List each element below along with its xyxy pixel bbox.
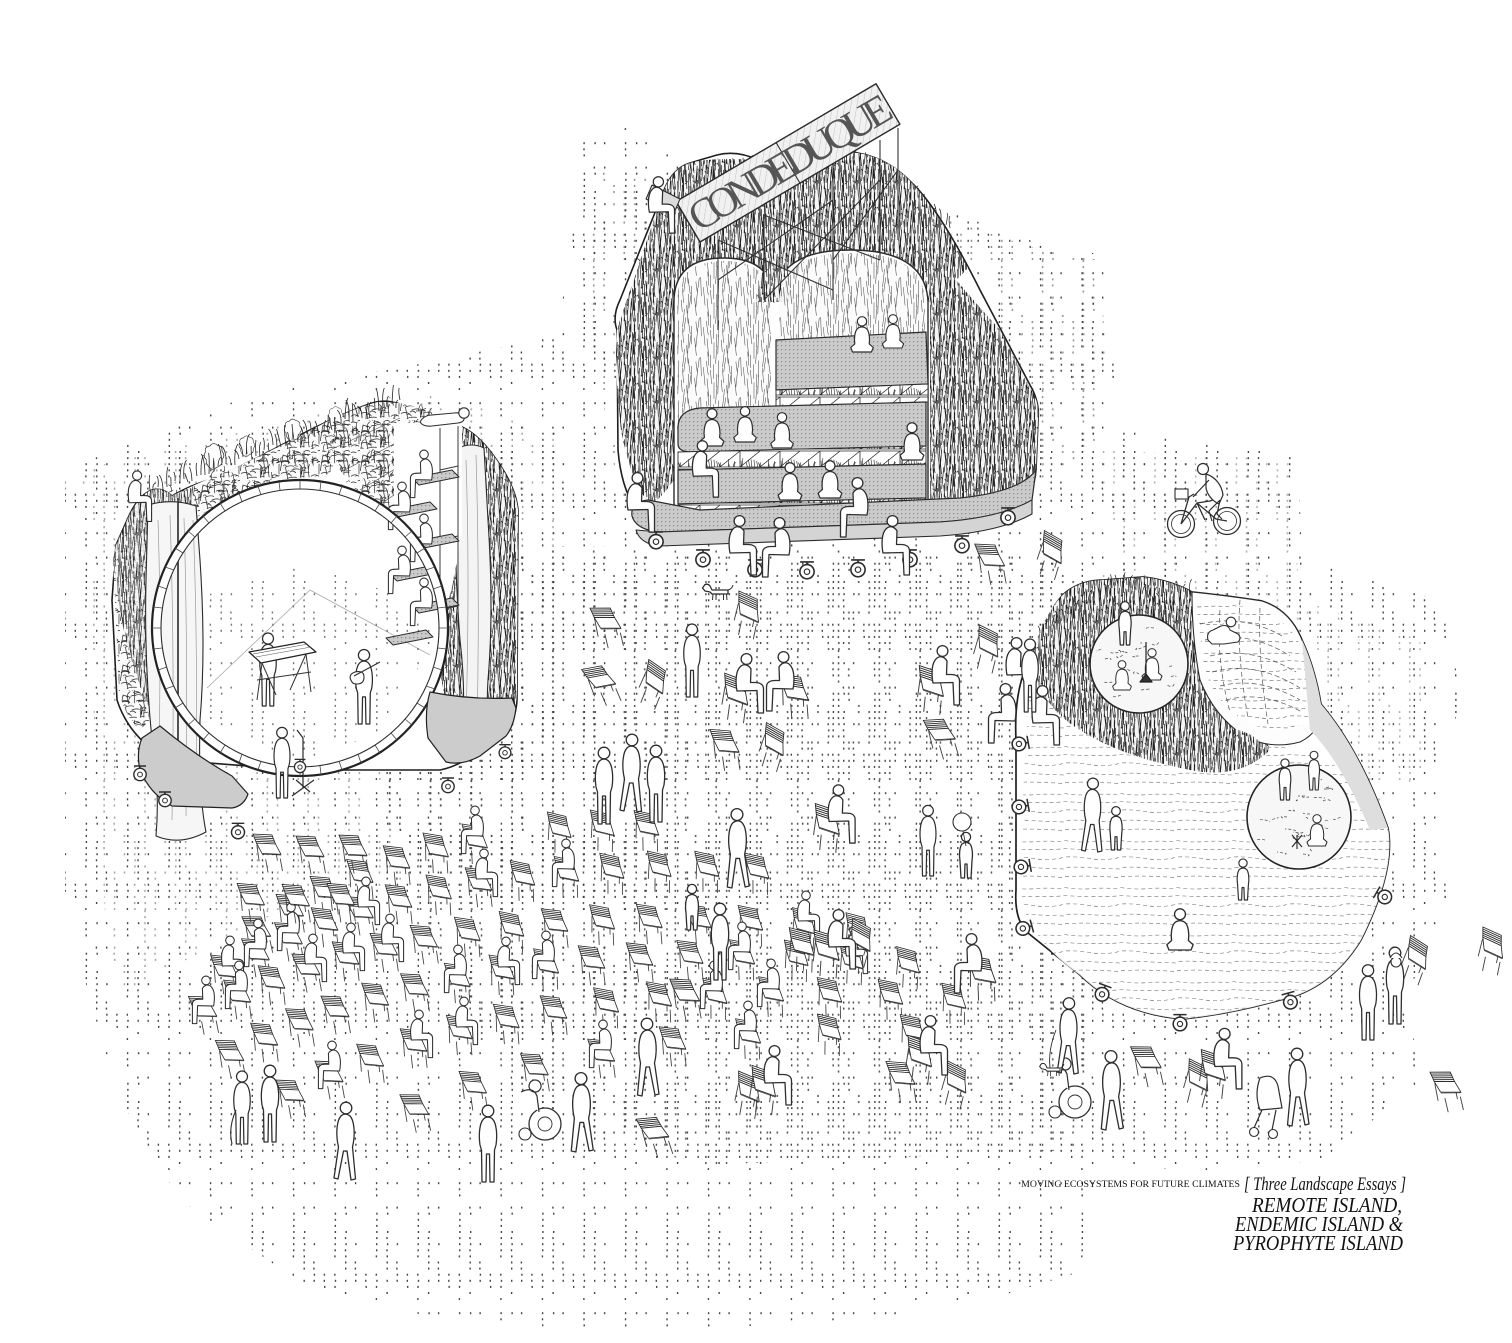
svg-text:MOVING ECOSYSTEMS FOR FUTURE C: MOVING ECOSYSTEMS FOR FUTURE CLIMATES xyxy=(1021,1179,1240,1190)
svg-text:PYROPHYTE ISLAND: PYROPHYTE ISLAND xyxy=(1232,1231,1403,1255)
svg-text:[ Three Landscape Essays ]: [ Three Landscape Essays ] xyxy=(1244,1174,1406,1195)
